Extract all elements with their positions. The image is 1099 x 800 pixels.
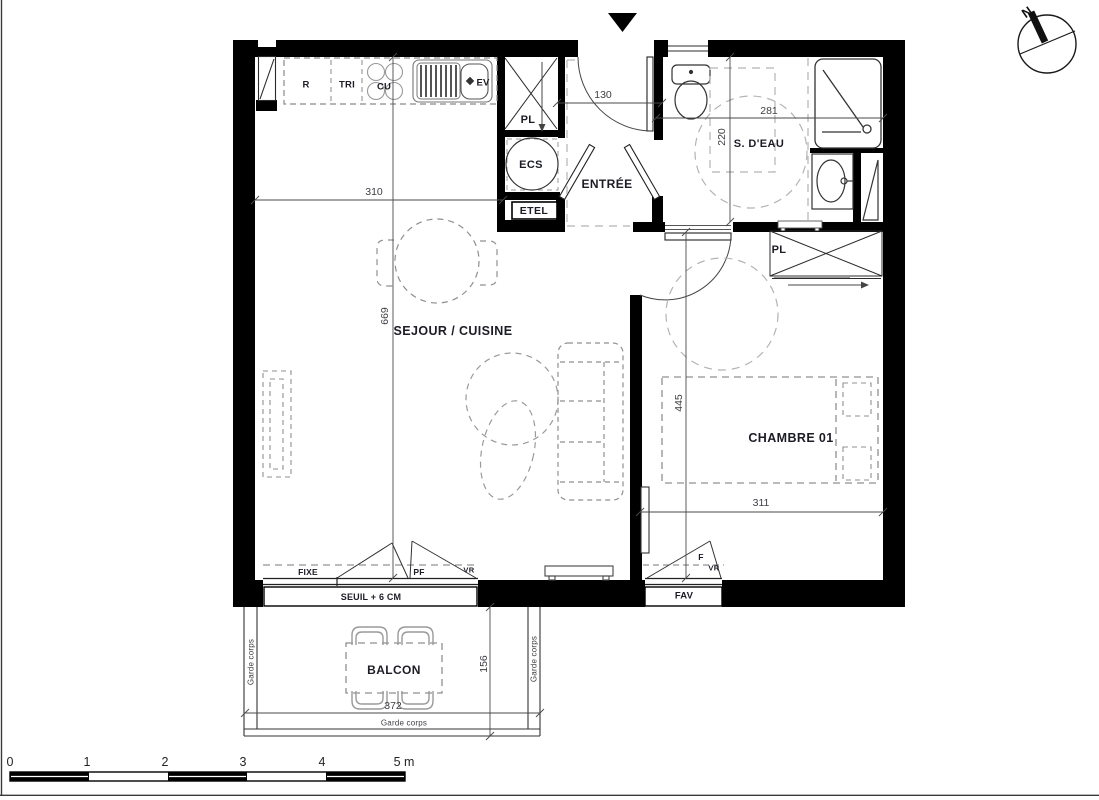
walls — [233, 40, 905, 607]
washbasin — [812, 154, 853, 209]
scale-tick-0: 0 — [7, 755, 14, 769]
railing-right-label: Garde corps — [530, 636, 539, 682]
bathroom-cabinet — [863, 160, 878, 220]
dim-balcony-width: 372 — [384, 700, 402, 712]
dim-kitchen-width: 310 — [365, 186, 383, 198]
dim-entry-width: 130 — [594, 89, 612, 101]
bedroom-closet-label: PL — [772, 244, 787, 256]
faucet-icon — [466, 77, 474, 85]
threshold-label: SEUIL + 6 CM — [341, 592, 402, 602]
scale-tick-3: 3 — [240, 755, 247, 769]
sink-label: EV — [476, 78, 489, 89]
fixed-pane-label: FIXE — [298, 567, 318, 577]
room-label-living: SEJOUR / CUISINE — [394, 324, 513, 338]
floor-plan-linework — [0, 0, 1099, 800]
waste-label: TRI — [339, 80, 355, 91]
scale-tick-1: 1 — [84, 755, 91, 769]
fridge-label: R — [302, 80, 309, 91]
floor-plan-page: SEJOUR / CUISINE ENTRÉE S. D'EAU CHAMBRE… — [0, 0, 1099, 800]
shutter-living-label: VR — [463, 566, 474, 575]
kitchen-window — [259, 57, 276, 101]
room-label-balcony: BALCON — [367, 663, 421, 677]
wc-window — [668, 46, 708, 51]
scale-tick-2: 2 — [162, 755, 169, 769]
front-door — [578, 57, 653, 131]
dim-bedroom-depth: 445 — [673, 394, 685, 412]
hob-label: CU — [377, 82, 391, 93]
electrical-panel-label: ETEL — [520, 205, 548, 217]
shutter-bedroom-label: VR — [708, 564, 719, 573]
room-label-entry: ENTRÉE — [581, 177, 632, 191]
scale-bar — [10, 772, 405, 781]
scale-tick-4: 4 — [319, 755, 326, 769]
fav-label: FAV — [675, 591, 693, 602]
bedroom-wall-leaf — [641, 487, 649, 553]
sofa — [558, 343, 623, 500]
armchair-rug — [466, 353, 558, 504]
dim-living-depth: 669 — [379, 307, 391, 325]
dim-bathroom-depth: 220 — [716, 128, 728, 146]
railing-left-label: Garde corps — [247, 639, 256, 685]
tv-stand — [545, 566, 613, 580]
dim-bathroom-width: 281 — [760, 105, 778, 117]
sideboard — [263, 371, 291, 477]
bed — [662, 377, 878, 483]
scale-tick-5m: 5 m — [394, 755, 415, 769]
water-heater-label: ECS — [519, 159, 543, 171]
dim-balcony-depth: 156 — [478, 655, 490, 673]
room-label-bathroom: S. D'EAU — [734, 138, 784, 150]
entrance-marker-icon — [608, 13, 637, 32]
toilet — [672, 65, 710, 119]
room-label-bedroom: CHAMBRE 01 — [748, 431, 833, 445]
entry-closet-label: PL — [521, 114, 536, 126]
bedroom-closet — [770, 231, 882, 289]
shower — [815, 59, 881, 148]
railing-front-label: Garde corps — [381, 719, 427, 728]
dining-table — [377, 219, 497, 303]
dimension-lines — [241, 53, 887, 740]
dim-bedroom-width: 311 — [753, 497, 770, 509]
window-f-label: F — [698, 552, 703, 562]
french-window-label: PF — [413, 567, 424, 577]
